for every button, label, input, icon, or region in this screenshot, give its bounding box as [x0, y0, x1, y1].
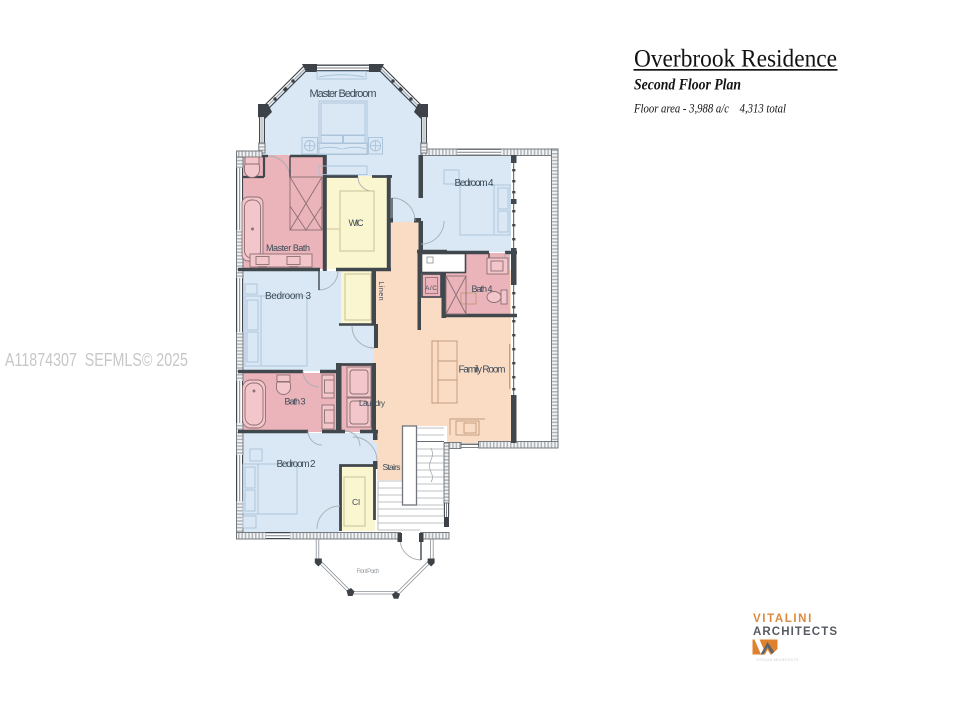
svg-text:Master Bath: Master Bath [266, 243, 310, 253]
svg-text:Front Porch: Front Porch [357, 569, 380, 575]
svg-text:Stairs: Stairs [383, 462, 401, 472]
svg-text:Linen: Linen [377, 282, 384, 301]
svg-text:Bedroom 4: Bedroom 4 [455, 178, 494, 189]
svg-text:Bedroom 2: Bedroom 2 [277, 459, 316, 470]
svg-text:Bath 3: Bath 3 [285, 397, 306, 407]
svg-text:Bath 4: Bath 4 [472, 284, 493, 294]
svg-text:Master Bedroom: Master Bedroom [310, 88, 377, 100]
svg-text:Laundry: Laundry [359, 399, 385, 408]
svg-text:Family Room: Family Room [459, 365, 506, 376]
svg-text:WIC: WIC [349, 218, 365, 228]
svg-text:Bedroom 3: Bedroom 3 [265, 291, 311, 302]
svg-text:A/C: A/C [425, 285, 437, 292]
svg-text:Cl: Cl [352, 497, 360, 507]
